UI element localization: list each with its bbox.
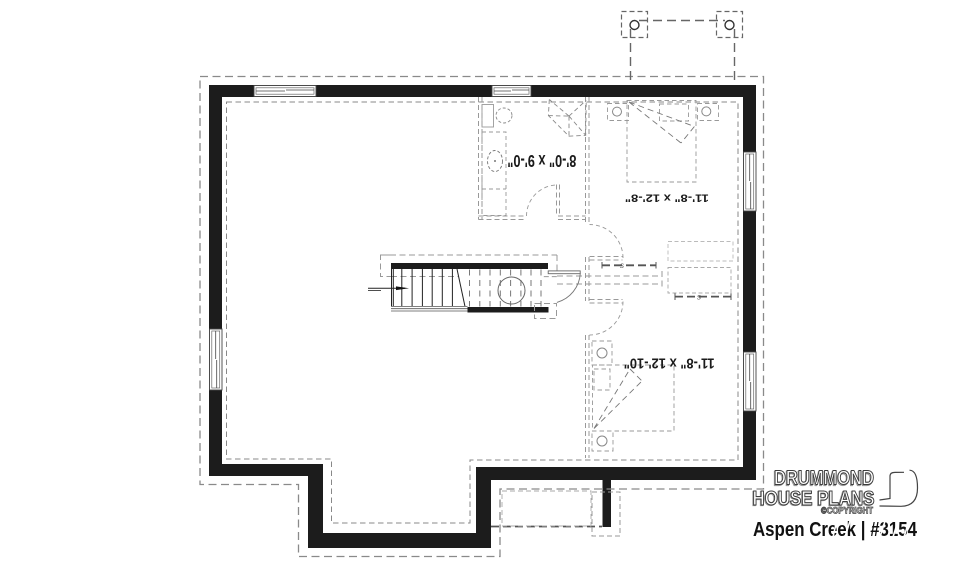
svg-text:©COPYRIGHT: ©COPYRIGHT: [821, 506, 873, 516]
svg-text:s: s: [697, 293, 701, 302]
svg-text:8'-0" x 9'-0": 8'-0" x 9'-0": [507, 150, 576, 169]
svg-text:11'-8" x 12'-10": 11'-8" x 12'-10": [624, 355, 715, 371]
svg-text:s: s: [620, 261, 624, 270]
svg-text:11'-8" x 12'-8": 11'-8" x 12'-8": [625, 192, 709, 205]
